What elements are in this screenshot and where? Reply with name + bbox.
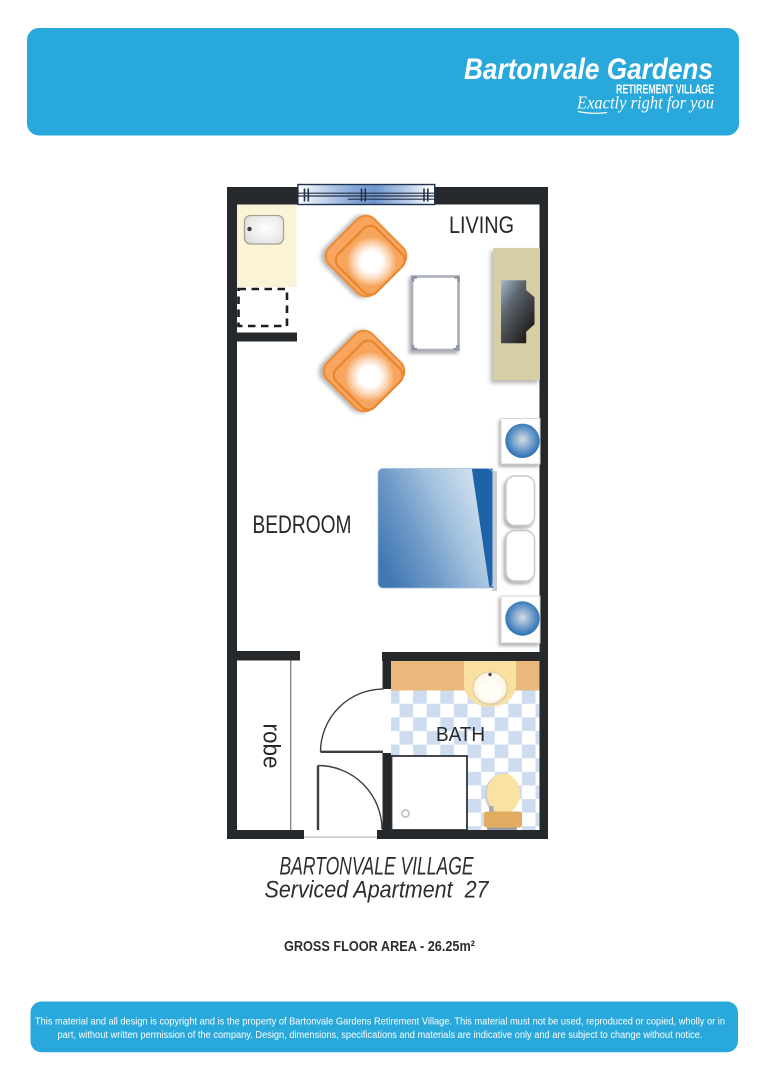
svg-text:BEDROOM: BEDROOM: [253, 511, 352, 539]
svg-text:LIVING: LIVING: [449, 212, 514, 239]
svg-text:This material and all design i: This material and all design is copyrigh…: [35, 1016, 725, 1028]
svg-text:robe: robe: [258, 724, 285, 769]
svg-text:Serviced Apartment 27: Serviced Apartment 27: [265, 877, 490, 904]
svg-text:BATH: BATH: [436, 724, 485, 746]
svg-text:Bartonvale Gardens: Bartonvale Gardens: [464, 53, 713, 86]
svg-text:GROSS FLOOR AREA - 26.25m²: GROSS FLOOR AREA - 26.25m²: [284, 938, 475, 955]
svg-text:Exactly right for you: Exactly right for you: [576, 93, 714, 113]
svg-text:part, without written permissi: part, without written permission of the …: [58, 1029, 703, 1041]
